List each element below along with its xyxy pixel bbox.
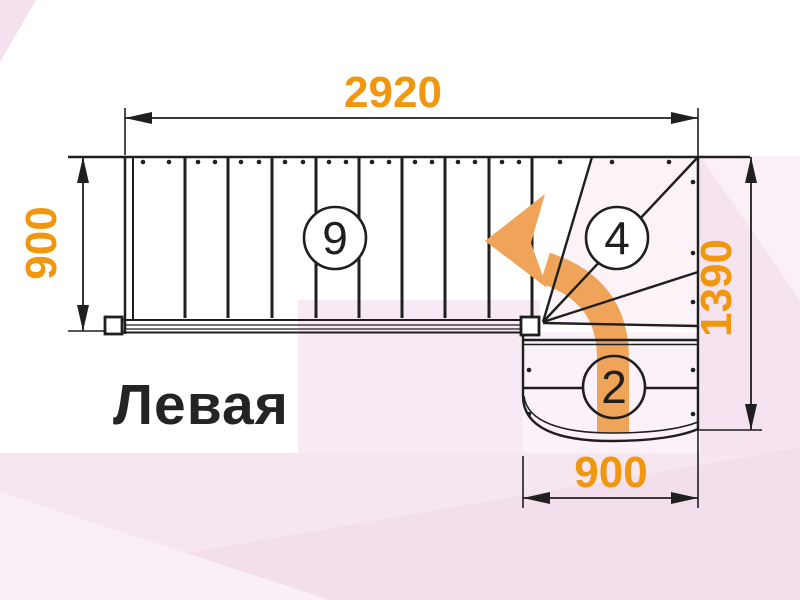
stair-plan-page: 9 4 2 2920 900 1390 900 Левая — [0, 0, 800, 600]
bottom-flight-count: 2 — [601, 361, 627, 413]
dimension-left — [68, 157, 124, 331]
dimension-left-value: 900 — [17, 206, 66, 279]
dimension-top-value: 2920 — [344, 68, 442, 117]
staircase-plan-drawing: 9 4 2 2920 900 1390 900 Левая — [0, 0, 800, 600]
dimension-bottom-value: 900 — [574, 448, 647, 497]
newel-post-pivot — [521, 317, 539, 335]
straight-flight-count: 9 — [322, 212, 348, 264]
winder-count: 4 — [604, 212, 630, 264]
newel-post-left — [105, 317, 122, 334]
variant-label: Левая — [113, 373, 289, 437]
turn-arrow-head — [485, 194, 547, 288]
dimension-right-value: 1390 — [692, 239, 741, 337]
